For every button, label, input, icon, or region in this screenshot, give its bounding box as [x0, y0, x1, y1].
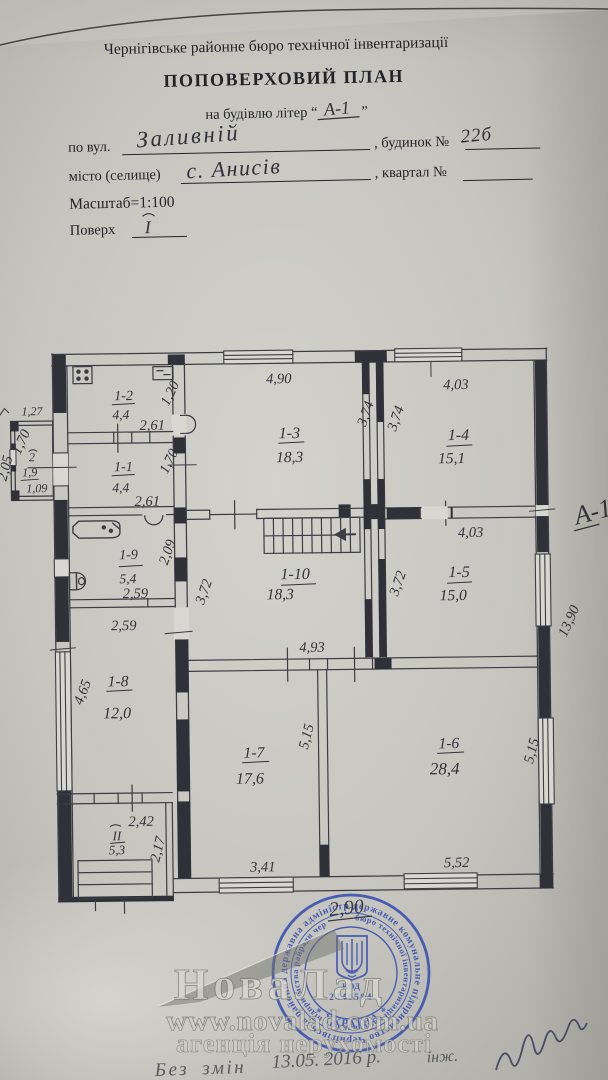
svg-text:1-6: 1-6: [438, 735, 459, 752]
svg-text:, будинок №: , будинок №: [374, 134, 450, 152]
svg-text:1,9: 1,9: [22, 465, 37, 479]
svg-text:2,42: 2,42: [128, 814, 154, 830]
svg-text:НоваЛад: НоваЛад: [174, 960, 387, 1009]
svg-text:А-1: А-1: [322, 97, 351, 119]
svg-text:18,3: 18,3: [267, 586, 295, 603]
svg-text:1,09: 1,09: [26, 481, 47, 495]
svg-text:4,4: 4,4: [112, 407, 129, 422]
svg-text:1-8: 1-8: [108, 673, 129, 690]
svg-text:, квартал №: , квартал №: [375, 164, 448, 182]
svg-text:1-10: 1-10: [280, 566, 310, 583]
svg-text:2,61: 2,61: [140, 418, 166, 434]
svg-text:17,6: 17,6: [236, 770, 264, 787]
svg-text:1-7: 1-7: [244, 744, 266, 761]
svg-text:15,0: 15,0: [440, 587, 468, 604]
svg-text:2,59: 2,59: [123, 586, 149, 602]
svg-text:5,52: 5,52: [444, 855, 470, 871]
svg-text:2,59: 2,59: [111, 618, 137, 634]
svg-text:с. Анисів: с. Анисів: [186, 153, 282, 183]
svg-text:по вул.: по вул.: [68, 139, 111, 156]
svg-text:Масштаб=1:100: Масштаб=1:100: [69, 194, 175, 213]
svg-text:15,1: 15,1: [438, 450, 465, 467]
svg-text:18,3: 18,3: [276, 449, 304, 466]
svg-text:4,93: 4,93: [299, 640, 325, 656]
svg-text:4,03: 4,03: [458, 525, 484, 541]
svg-text:ІІ: ІІ: [112, 828, 123, 843]
svg-text:1-2: 1-2: [114, 389, 133, 404]
svg-text:Поверх: Поверх: [70, 222, 116, 239]
svg-text:4,03: 4,03: [443, 377, 469, 393]
svg-text:28,4: 28,4: [430, 759, 460, 778]
svg-text:1-1: 1-1: [114, 460, 133, 475]
svg-text:3,41: 3,41: [249, 859, 276, 875]
svg-text:22б: 22б: [460, 124, 494, 148]
svg-text:Без змін: Без змін: [153, 1057, 246, 1080]
svg-text:інж.: інж.: [426, 1048, 458, 1067]
svg-text:1-3: 1-3: [279, 425, 301, 442]
svg-text:1-9: 1-9: [119, 548, 138, 563]
svg-text:місто (селище): місто (селище): [69, 167, 161, 185]
svg-text:5,4: 5,4: [119, 571, 136, 586]
svg-text:”: ”: [361, 104, 368, 120]
svg-text:1-5: 1-5: [448, 564, 470, 581]
svg-text:5,3: 5,3: [109, 842, 126, 857]
svg-text:2,61: 2,61: [134, 494, 160, 510]
svg-text:4,4: 4,4: [112, 480, 129, 495]
svg-text:4,90: 4,90: [266, 371, 292, 387]
svg-text:12,0: 12,0: [103, 705, 131, 722]
svg-text:2: 2: [29, 450, 35, 464]
svg-text:1,27: 1,27: [21, 404, 43, 418]
svg-text:1-4: 1-4: [448, 427, 470, 444]
